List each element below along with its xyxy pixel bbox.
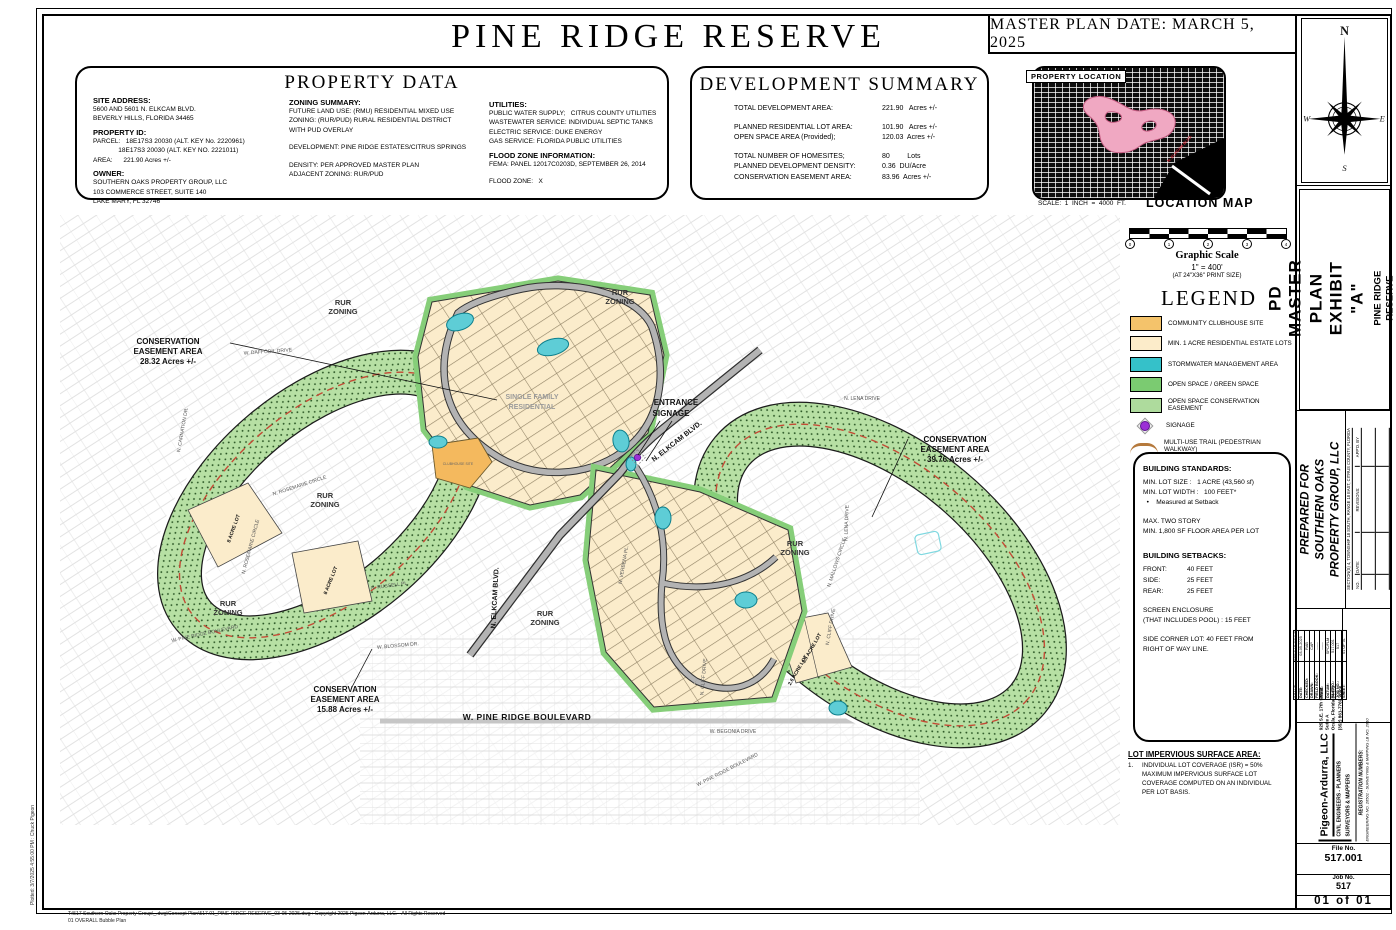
text-line: FEMA: PANEL 12017C0203D, SEPTEMBER 26, 2… [489,160,661,169]
registration-title: REGISTRATION NUMBERS: [1358,724,1364,842]
titleblock-field-value: ------ [1320,631,1324,661]
location-map-caption: LOCATION MAP [1146,196,1254,210]
summary-value: 80 Lots [882,152,921,163]
summary-row: PLANNED RESIDENTIAL LOT AREA:101.90 Acre… [734,123,974,134]
compass-rose-icon: N W E S [1302,19,1387,180]
summary-value: 0.36 DU/Acre [882,162,926,173]
map-label: EASEMENT AREA [133,347,202,356]
map-label: ZONING [530,618,559,627]
text-line: PARCEL: 18E17S3 20030 (ALT. KEY No. 2220… [93,137,288,146]
text-line: 5600 AND 5601 N. ELKCAM BLVD. [93,105,288,114]
text-line: • Measured at Setback [1143,498,1281,508]
setback-label: REAR: [1143,587,1187,598]
map-label: ZONING [213,608,242,617]
master-plan-date: MASTER PLAN DATE: MARCH 5, 2025 [988,16,1295,54]
scale-tick: 4 [1281,239,1291,249]
map-label: 39.76 Acres +/- [927,455,983,464]
text-line: (THAT INCLUDES POOL) : 15 FEET [1143,616,1281,626]
signage-swatch [1130,418,1160,434]
property-data-utilities-column: UTILITIES: PUBLIC WATER SUPPLY; CITRUS C… [489,100,661,187]
impervious-text: INDIVIDUAL LOT COVERAGE (ISR) = 50%MAXIM… [1142,762,1272,798]
map-label: ZONING [310,500,339,509]
revision-row [1362,428,1376,590]
text-line: MIN. LOT WIDTH : 100 FEET* [1143,488,1281,498]
text-line [289,153,489,161]
map-label: CONSERVATION [313,685,376,694]
map-label: SINGLE FAMILY [505,394,558,401]
text-line: PUBLIC WATER SUPPLY; CITRUS COUNTY UTILI… [489,109,661,118]
titleblock-field-value: SPC/FLM [1325,631,1329,661]
prepared-for-panel: PREPARED FOR SOUTHERN OAKS PROPERTY GROU… [1297,412,1345,606]
zoning-summary-label: ZONING SUMMARY: [289,98,489,107]
flood-zone-label: FLOOD ZONE INFORMATION: [489,151,661,160]
text-line: AREA: 221.90 Acres +/- [93,156,288,165]
text-line: COVERAGE COMPUTED ON AN INDIVIDUAL [1142,780,1272,789]
scale-tick: 3 [1242,239,1252,249]
text-line: Ocala, Florida 34471 [1330,690,1336,730]
legend-swatch [1130,336,1162,351]
firm-tagline1: CIVIL ENGINEERS - PLANNERS [1336,733,1343,836]
legend-item: STORMWATER MANAGEMENT AREA [1130,357,1294,371]
summary-label: PLANNED DEVELOPMENT DENSITY: [734,162,882,173]
legend-label: OPEN SPACE / GREEN SPACE [1168,381,1259,388]
sidebar-divider [1297,843,1390,844]
sidebar-divider [1297,410,1390,411]
scale-tick: 0 [1125,239,1135,249]
text-line: BEVERLY HILLS, FLORIDA 34465 [93,114,288,123]
rev-no-header: NO. [1354,574,1359,590]
text-line: LAKE MARY, FL 32746 [93,197,288,206]
svg-text:W: W [1303,114,1311,124]
summary-row: CONSERVATION EASEMENT AREA:83.96 Acres +… [734,173,974,184]
map-label: RUR [787,539,804,548]
legend-item: SIGNAGE [1130,419,1294,433]
titleblock-row: DATE:03-05-2025 [1299,631,1304,699]
impervious-title: LOT IMPERVIOUS SURFACE AREA: [1128,750,1298,759]
titleblock-field-label: DATE: [1299,661,1303,699]
summary-label: TOTAL DEVELOPMENT AREA: [734,104,882,115]
graphic-scale-title: Graphic Scale [1129,250,1285,261]
summary-row: OPEN SPACE AREA (Provided);120.03 Acres … [734,133,974,144]
footer-path: T:\517 Southern Oaks Property Group\_.dw… [68,911,445,918]
utilities-label: UTILITIES: [489,100,661,109]
svg-text:N: N [1340,24,1349,38]
summary-label: TOTAL NUMBER OF HOMESITES; [734,152,882,163]
titleblock-field-label: CHECKED: [1304,661,1308,699]
graphic-scale-ticks: 01234 [1126,239,1288,249]
map-label: RUR [612,288,629,297]
property-location-label: PROPERTY LOCATION [1026,70,1126,83]
prepared-for-line1: PREPARED FOR [1299,441,1314,576]
impervious-item-number: 1. [1128,762,1142,798]
map-label: EASEMENT AREA [920,445,989,454]
signage-icon [1140,421,1150,431]
text-line: MIN. LOT SIZE : 1 ACRE (43,560 sf) [1143,478,1281,488]
location-map-scale: SCALE: 1 INCH = 4000 FT. [1038,200,1126,207]
map-label: EASEMENT AREA [310,695,379,704]
summary-row: TOTAL NUMBER OF HOMESITES;80 Lots [734,152,974,163]
map-label: N. LENA DRIVE [844,396,881,402]
sidebar-divider [1297,185,1390,186]
text-line: RIGHT OF WAY LINE. [1143,645,1281,655]
legend-item: MULTI-USE TRAIL (PEDESTRIAN WALKWAY) [1130,439,1294,453]
titleblock-field-value: SEE BAR SCALE [1294,631,1298,661]
text-line: SCREEN ENCLOSURE [1143,606,1281,616]
text-line: ELECTRIC SERVICE: DUKE ENERGY [489,128,661,137]
development-summary-title: DEVELOPMENT SUMMARY [692,74,987,96]
setback-value: 25 FEET [1187,587,1213,598]
compass-panel: N W E S [1301,18,1388,183]
building-standards-notes: SCREEN ENCLOSURE(THAT INCLUDES POOL) : 1… [1143,597,1281,655]
legend-label: STORMWATER MANAGEMENT AREA [1168,361,1278,368]
text-line: MAX. TWO STORY [1143,517,1281,527]
utilities: PUBLIC WATER SUPPLY; CITRUS COUNTY UTILI… [489,109,661,147]
prepared-for-line2: SOUTHERN OAKS [1314,441,1329,576]
text-line: 18E17S3 20030 (ALT. KEY NO. 2221011) [93,146,288,155]
map-label: CONSERVATION [923,435,986,444]
map-label: W. BEGONIA DRIVE [710,729,757,735]
rev-date-header: DATE: [1354,532,1359,574]
map-label: RUR [537,609,554,618]
svg-text:E: E [1379,114,1386,124]
exhibit-title-line2: EXHIBIT "A" [1327,252,1368,345]
text-line: SIDE CORNER LOT: 40 FEET FROM [1143,635,1281,645]
summary-label: CONSERVATION EASEMENT AREA: [734,173,882,184]
map-label: CONSERVATION [136,337,199,346]
summary-value: 120.03 Acres +/- [882,133,935,144]
rev-revisions-header: REVISIONS: [1354,466,1359,532]
text-line: 103 COMMERCE STREET, SUITE 140 [93,188,288,197]
zoning-summary: FUTURE LAND USE: (RMU) RESIDENTIAL MIXED… [289,107,489,180]
impervious-note: LOT IMPERVIOUS SURFACE AREA: 1. INDIVIDU… [1128,750,1298,798]
titleblock-row: DRAWN:CAP [1309,631,1314,699]
text-line [1143,536,1281,545]
titleblock-field-label: DRAWN: [1309,661,1313,699]
property-id: PARCEL: 18E17S3 20030 (ALT. KEY No. 2220… [93,137,288,165]
map-label: SIGNAGE [653,409,691,418]
project-name: PINE RIDGE RESERVE [1372,252,1396,345]
map-label: N. LENA DRIVE [843,504,850,541]
text-line: (352) 861-7769 voice [1337,690,1343,730]
setback-value: 25 FEET [1187,576,1213,587]
summary-value: 83.96 Acres +/- [882,173,931,184]
legend-swatch [1130,316,1162,331]
property-data-left-column: SITE ADDRESS: 5600 AND 5601 N. ELKCAM BL… [93,92,288,206]
revisions-panel: SECTION(S) 4, TOWNSHIP 18 SOUTH, RANGE 1… [1345,412,1390,606]
property-data-title: PROPERTY DATA [77,72,667,94]
legend-item: OPEN SPACE CONSERVATION EASEMENT [1130,398,1294,412]
scale-tick: 1 [1164,239,1174,249]
titleblock-field-value: 517.001 [1331,631,1335,661]
map-label: RESIDENTIAL [509,404,556,411]
location-map-highlight [1034,68,1224,198]
development-summary-rows: TOTAL DEVELOPMENT AREA:221.90 Acres +/-P… [734,104,974,183]
summary-row: TOTAL DEVELOPMENT AREA:221.90 Acres +/- [734,104,974,115]
owner-label: OWNER: [93,169,288,178]
map-label: 15.88 Acres +/- [317,705,373,714]
firm-panel: Pigeon-Ardurra, LLC CIVIL ENGINEERS - PL… [1297,722,1390,843]
summary-value: 101.90 Acres +/- [882,123,937,134]
legend-label: COMMUNITY CLUBHOUSE SITE [1168,320,1263,327]
titleblock-field-label: SCALE: [1294,661,1298,699]
site-address: 5600 AND 5601 N. ELKCAM BLVD.BEVERLY HIL… [93,105,288,124]
text-line: WITH PUD OVERLAY [289,126,489,135]
titleblock-field-value: 03-05-2025 [1299,631,1303,661]
summary-label: OPEN SPACE AREA (Provided); [734,133,882,144]
svg-text:S: S [1342,163,1347,173]
text-line: ZONING: (RUR/PUD) RURAL RESIDENTIAL DIST… [289,116,489,125]
exhibit-title-line1: PD MASTER PLAN [1265,252,1326,345]
text-line [1143,626,1281,635]
summary-label: PLANNED RESIDENTIAL LOT AREA: [734,123,882,134]
graphic-scale-note: (AT 24"X36" PRINT SIZE) [1129,273,1285,279]
revisions-header: NO. DATE: REVISIONS: APP'D. BY [1353,428,1362,590]
flood-zone: FEMA: PANEL 12017C0203D, SEPTEMBER 26, 2… [489,160,661,187]
text-line: PER LOT BASIS. [1142,789,1272,798]
map-label: CLUBHOUSE SITE [443,462,474,466]
map-label: RUR [317,491,334,500]
map-label: ZONING [328,307,357,316]
text-line: INDIVIDUAL LOT COVERAGE (ISR) = 50% [1142,762,1272,771]
property-data-box: PROPERTY DATA SITE ADDRESS: 5600 AND 560… [75,66,669,200]
text-line: MIN. 1,800 SF FLOOR AREA PER LOT [1143,527,1281,537]
text-line: DENSITY: PER APPROVED MASTER PLAN [289,161,489,170]
job-number-block: Job No. 517 [1297,875,1390,891]
job-no-value: 517 [1297,881,1390,891]
plotted-note: Plotted: 3/7/2025 4:55:00 PM : Chuck Pig… [30,805,36,905]
text-line: FUTURE LAND USE: (RMU) RESIDENTIAL MIXED… [289,107,489,116]
setback-value: 40 FEET [1187,565,1213,576]
setback-row: SIDE:25 FEET [1143,576,1281,587]
registration-numbers: ENGINEERING NO. 26501 - SURVEYING & MAPP… [1364,724,1369,842]
graphic-scale-bar [1129,228,1287,239]
building-standards-title: BUILDING STANDARDS: [1143,464,1281,473]
titleblock-field-value: 01 OF 01 [1341,631,1345,661]
drawing-sheet: { "sheet": { "title": "PINE RIDGE RESERV… [0,0,1396,930]
map-label: ENTRANCE [654,398,699,407]
property-id-label: PROPERTY ID: [93,128,288,137]
legend-label: SIGNAGE [1166,422,1195,429]
sheet-number: 01 of 01 [1297,895,1390,907]
text-line [1143,597,1281,606]
titleblock-row: CHECKED:RAB [1304,631,1309,699]
text-line: Suite A [1324,690,1330,730]
firm-tagline2: SURVEYORS & MAPPERS [1345,733,1352,836]
rev-appd-header: APP'D. BY [1354,428,1359,466]
scale-tick: 2 [1203,239,1213,249]
legend-swatch [1130,398,1162,413]
titleblock-field-value: RAB [1304,631,1308,661]
file-no-value: 517.001 [1297,852,1390,864]
location-map: N. ELKCAM BLVD. [1032,66,1226,200]
footer-note: T:\517 Southern Oaks Property Group\_.dw… [68,911,445,925]
legend-swatch [1130,357,1162,372]
site-plan: CONSERVATIONEASEMENT AREA28.32 Acres +/-… [60,215,1120,825]
footer-plan-name: 01 OVERALL Bubble Plan [68,918,445,925]
map-label: RUR [220,599,237,608]
map-label: 28.32 Acres +/- [140,357,196,366]
setback-row: FRONT:40 FEET [1143,565,1281,576]
titleblock-field-value: 517 [1336,631,1340,661]
building-standards-lines: MIN. LOT SIZE : 1 ACRE (43,560 sf)MIN. L… [1143,478,1281,545]
file-number-block: File No. 517.001 [1297,845,1390,864]
text-line: WASTEWATER SERVICE: INDIVIDUAL SEPTIC TA… [489,118,661,127]
site-address-label: SITE ADDRESS: [93,96,288,105]
map-label: ZONING [605,297,634,306]
titleblock-row: DATUM:SPC/FLM [1325,631,1330,699]
map-label: ZONING [780,548,809,557]
text-line [1143,508,1281,517]
legend-swatch [1130,377,1162,392]
titleblock-field-value: ------ [1315,631,1319,661]
exhibit-panel: PD MASTER PLAN EXHIBIT "A" PINE RIDGE RE… [1297,187,1390,410]
legend-label: MULTI-USE TRAIL (PEDESTRIAN WALKWAY) [1164,439,1294,453]
file-no-label: File No. [1297,845,1390,852]
text-line: ADJACENT ZONING: RUR/PUD [289,170,489,179]
building-setbacks: FRONT:40 FEETSIDE:25 FEETREAR:25 FEET [1143,565,1281,597]
prepared-for-line3: PROPERTY GROUP, LLC [1328,441,1343,576]
property-data-zoning-column: ZONING SUMMARY: FUTURE LAND USE: (RMU) R… [289,98,489,180]
text-line: FLOOD ZONE: X [489,177,661,186]
development-summary-box: DEVELOPMENT SUMMARY TOTAL DEVELOPMENT AR… [690,66,989,200]
summary-value: 221.90 Acres +/- [882,104,937,115]
text-line [489,169,661,177]
text-line: SOUTHERN OAKS PROPERTY GROUP, LLC [93,178,288,187]
text-line: 925 S.E. 17th Street [1318,690,1324,730]
graphic-scale-ratio: 1" = 400' [1129,263,1285,272]
text-line: DEVELOPMENT: PINE RIDGE ESTATES/CITRUS S… [289,143,489,152]
firm-address: 925 S.E. 17th StreetSuite AOcala, Florid… [1318,690,1351,733]
titleblock-field-value: CAP [1309,631,1313,661]
text-line: MAXIMUM IMPERVIOUS SURFACE LOT [1142,771,1272,780]
map-label: W. PINE RIDGE BOULEVARD [463,712,591,722]
legend-label: OPEN SPACE CONSERVATION EASEMENT [1168,398,1294,412]
firm-name: Pigeon-Ardurra, LLC [1318,733,1334,836]
building-standards-box: BUILDING STANDARDS: MIN. LOT SIZE : 1 AC… [1133,452,1291,742]
summary-row: PLANNED DEVELOPMENT DENSITY:0.36 DU/Acre [734,162,974,173]
setback-row: REAR:25 FEET [1143,587,1281,598]
text-line: GAS SERVICE: FLORIDA PUBLIC UTILITIES [489,137,661,146]
setback-label: SIDE: [1143,576,1187,587]
titleblock-row: SCALE:SEE BAR SCALE [1294,631,1299,699]
setback-label: FRONT: [1143,565,1187,576]
map-label: RUR [335,298,352,307]
legend-item: OPEN SPACE / GREEN SPACE [1130,378,1294,392]
building-setbacks-title: BUILDING SETBACKS: [1143,551,1281,560]
section-township-line: SECTION(S) 4, TOWNSHIP 18 SOUTH, RANGE 1… [1346,428,1353,590]
revision-row [1376,428,1390,590]
text-line [289,135,489,143]
owner: SOUTHERN OAKS PROPERTY GROUP, LLC103 COM… [93,178,288,206]
